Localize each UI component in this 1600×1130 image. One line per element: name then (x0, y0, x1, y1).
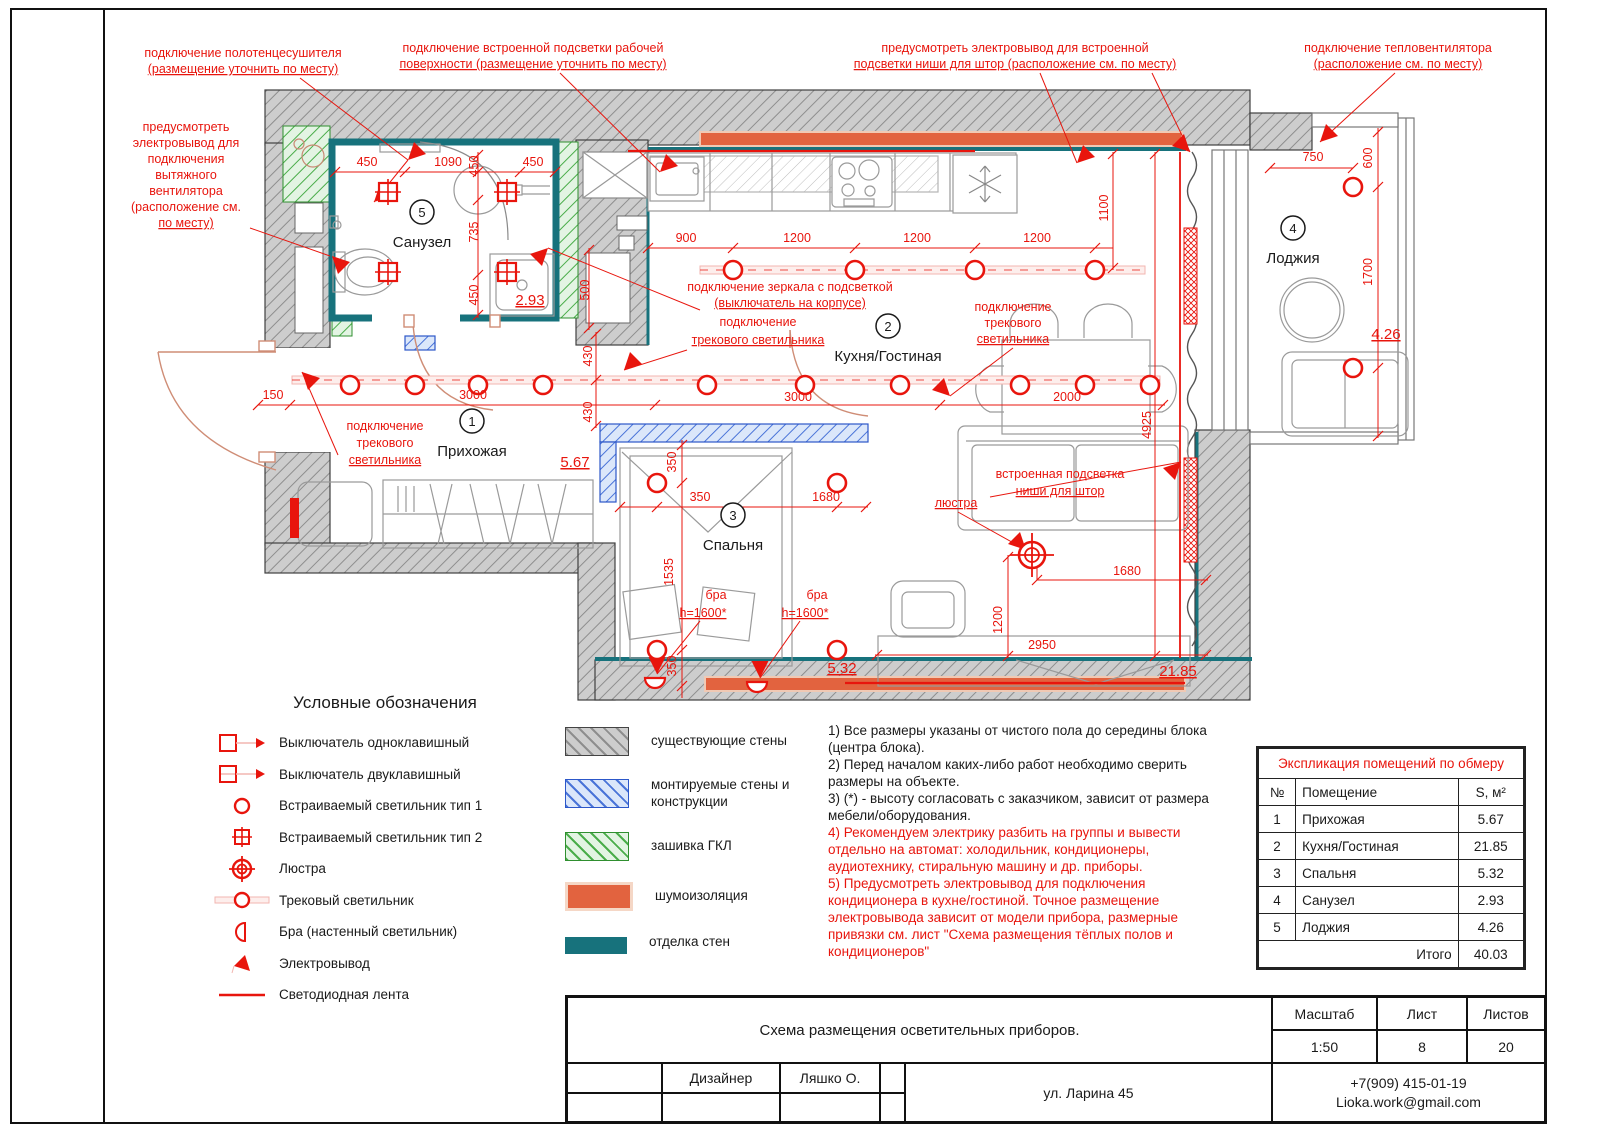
sheet-frame (10, 8, 1547, 1124)
drawing-sheet: подключение полотенцесушителя(размещение… (0, 0, 1600, 1130)
sheet-frame-margin-line (103, 8, 105, 1122)
